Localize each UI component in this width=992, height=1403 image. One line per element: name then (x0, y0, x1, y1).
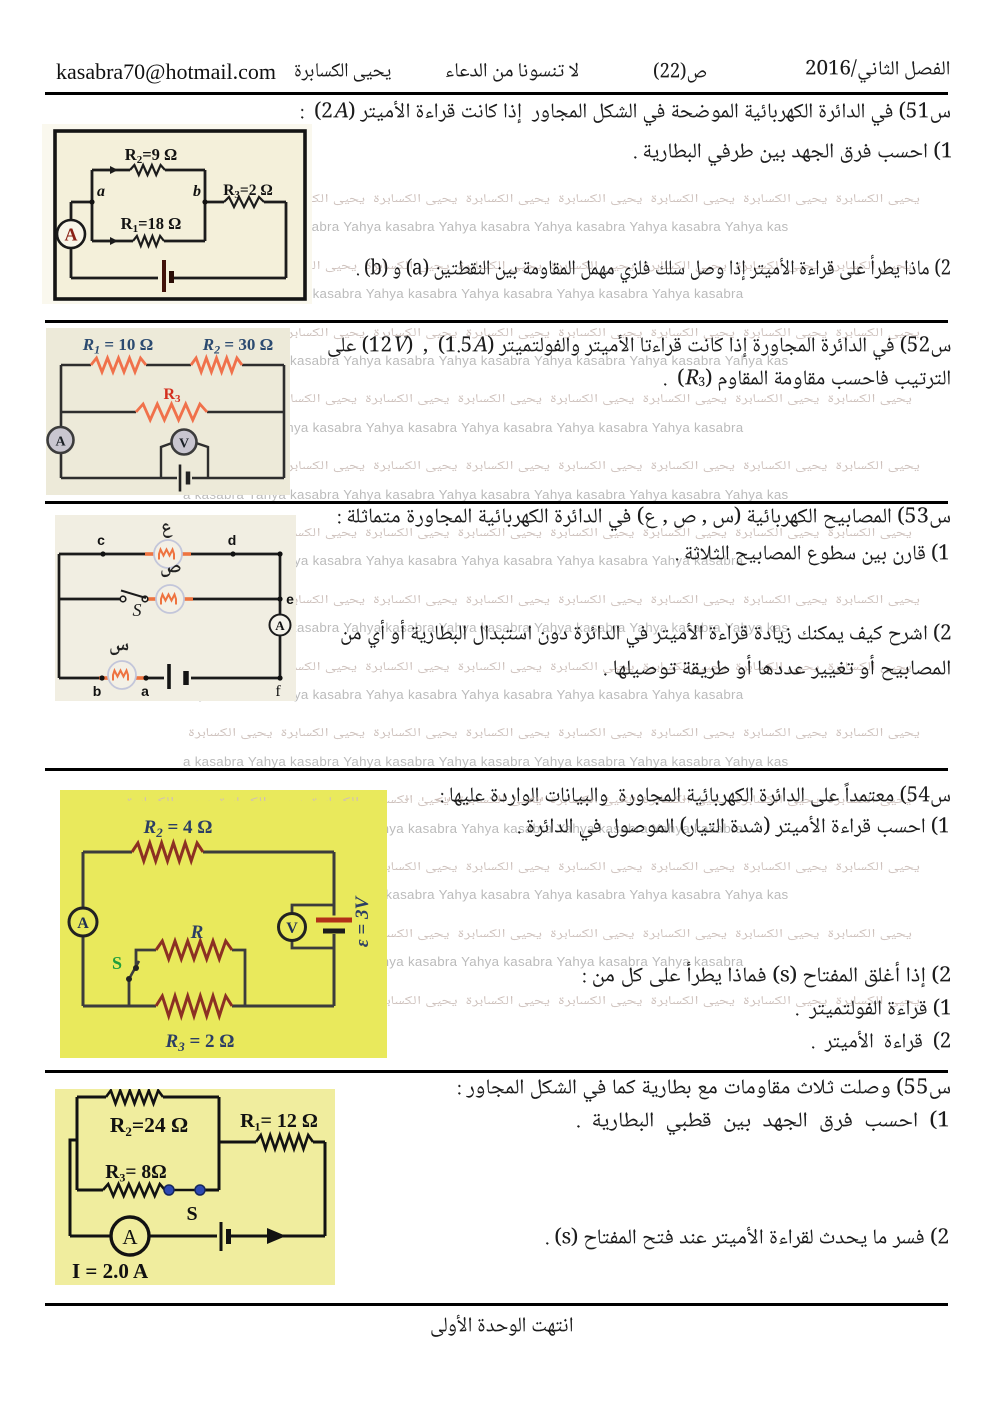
svg-text:A: A (77, 915, 89, 932)
svg-text:A: A (275, 618, 285, 633)
svg-text:R2=24 Ω: R2=24 Ω (110, 1113, 188, 1139)
svg-text:f: f (275, 683, 281, 700)
svg-text:ε = 3V: ε = 3V (352, 896, 373, 948)
svg-text:R: R (190, 922, 204, 943)
svg-text:R2 = 30 Ω: R2 = 30 Ω (202, 335, 273, 357)
svg-text:R2 = 4 Ω: R2 = 4 Ω (143, 817, 213, 840)
svg-text:R1=18 Ω: R1=18 Ω (121, 214, 182, 235)
svg-text:R3=2 Ω: R3=2 Ω (223, 182, 273, 201)
svg-text:b: b (193, 183, 201, 200)
svg-text:c: c (97, 532, 105, 548)
svg-text:b: b (93, 683, 102, 699)
svg-text:V: V (179, 437, 189, 452)
svg-text:R3= 8Ω: R3= 8Ω (105, 1162, 166, 1185)
svg-text:a: a (97, 183, 105, 200)
svg-text:R1 = 10 Ω: R1 = 10 Ω (82, 335, 153, 357)
svg-text:A: A (55, 435, 66, 450)
svg-text:a: a (141, 683, 149, 699)
svg-text:R1= 12 Ω: R1= 12 Ω (240, 1110, 318, 1134)
svg-text:A: A (65, 225, 78, 245)
svg-text:I = 2.0 A: I = 2.0 A (72, 1259, 149, 1283)
svg-text:V: V (286, 920, 298, 937)
svg-text:e: e (286, 591, 294, 607)
svg-text:A: A (122, 1225, 138, 1249)
svg-text:S: S (186, 1203, 197, 1225)
svg-text:R3 = 2 Ω: R3 = 2 Ω (165, 1031, 235, 1054)
svg-text:S: S (133, 600, 142, 620)
svg-text:d: d (228, 532, 237, 548)
svg-text:S: S (112, 953, 122, 973)
svg-text:R2=9 Ω: R2=9 Ω (125, 145, 177, 166)
